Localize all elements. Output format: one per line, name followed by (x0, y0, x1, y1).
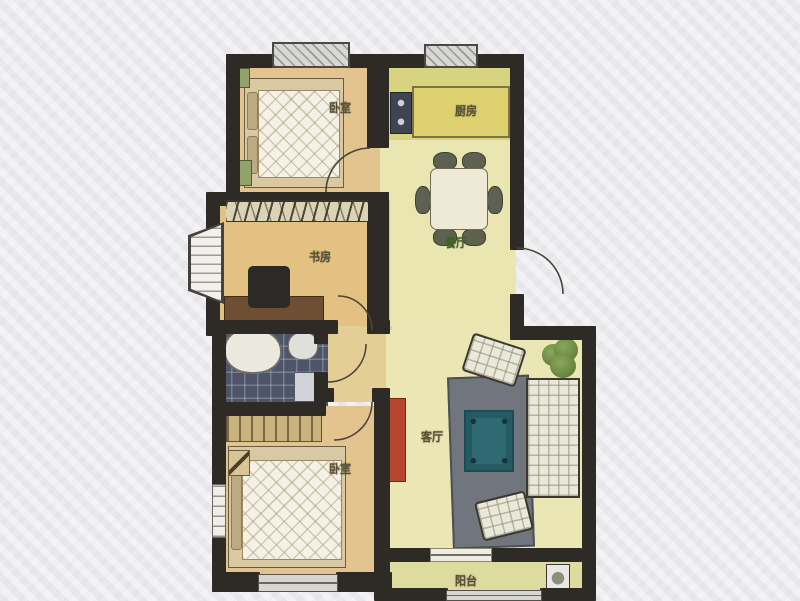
floor-plan: 卧室 厨房 餐厅 书房 卧室 客厅 阳台 (0, 0, 800, 601)
door-arcs (0, 0, 800, 601)
room-label-balcony: 阳台 (444, 574, 488, 588)
door-arc-entry (517, 248, 563, 294)
room-label-dining: 餐厅 (436, 236, 476, 250)
door-arc-bathroom (328, 344, 366, 382)
door-arc-bedroom-top (326, 148, 370, 192)
door-arc-bedroom-bottom (334, 402, 372, 440)
room-label-bedroom-bottom: 卧室 (320, 462, 360, 476)
floor-plan-art (0, 0, 800, 601)
room-label-study: 书房 (300, 250, 340, 264)
room-label-kitchen: 厨房 (446, 104, 486, 118)
room-label-living: 客厅 (410, 430, 454, 444)
door-arc-study (338, 296, 372, 330)
room-label-bedroom-top: 卧室 (320, 101, 360, 115)
